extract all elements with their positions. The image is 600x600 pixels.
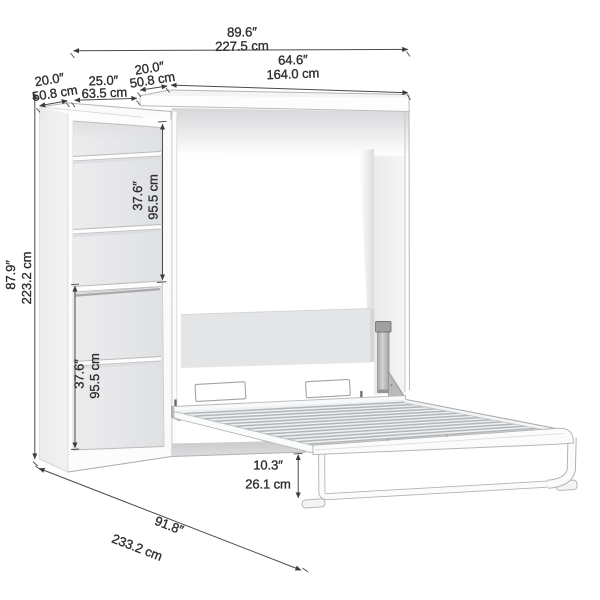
svg-text:26.1 cm: 26.1 cm [245,477,291,492]
svg-text:87.9″: 87.9″ [3,260,18,290]
svg-text:37.6″: 37.6″ [72,359,87,389]
svg-text:164.0 cm: 164.0 cm [266,65,319,82]
svg-text:63.5 cm: 63.5 cm [81,85,127,102]
svg-text:227.5 cm: 227.5 cm [215,38,269,54]
svg-text:223.2 cm: 223.2 cm [19,252,34,305]
svg-text:10.3″: 10.3″ [253,458,283,473]
svg-text:37.6″: 37.6″ [130,181,145,211]
svg-text:95.5 cm: 95.5 cm [87,353,102,399]
svg-text:95.5 cm: 95.5 cm [146,174,161,220]
